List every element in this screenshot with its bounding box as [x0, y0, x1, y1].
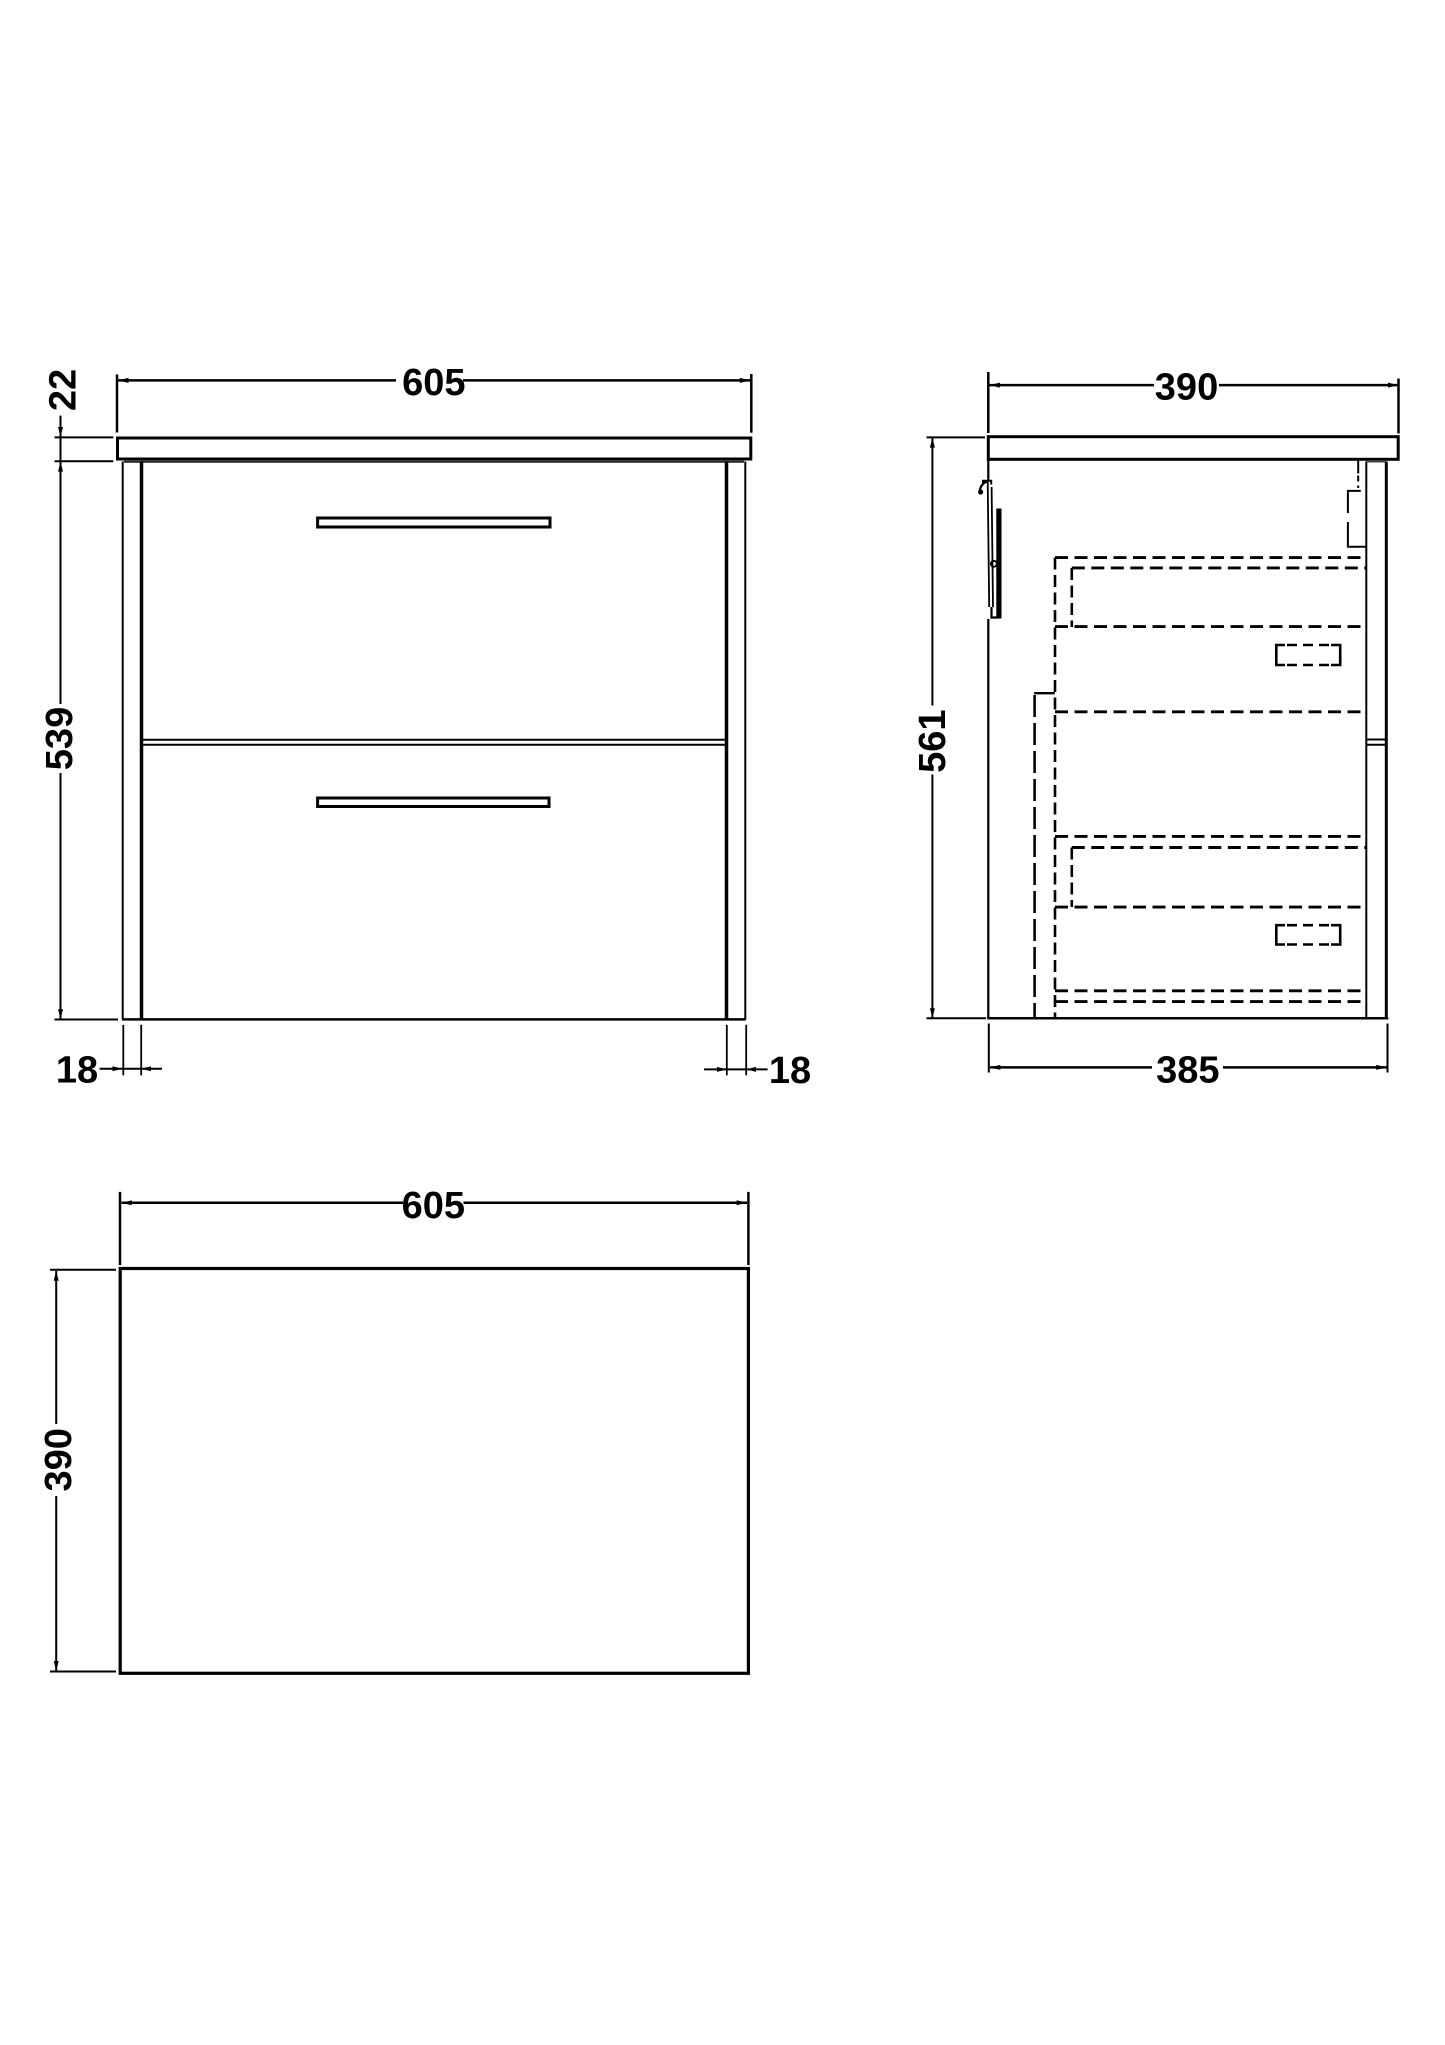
svg-text:18: 18: [769, 1050, 811, 1092]
svg-text:561: 561: [912, 709, 954, 772]
svg-text:18: 18: [56, 1049, 98, 1091]
svg-text:605: 605: [402, 362, 465, 404]
svg-text:390: 390: [1155, 366, 1218, 408]
svg-text:605: 605: [402, 1185, 465, 1227]
svg-text:385: 385: [1156, 1049, 1219, 1091]
svg-text:539: 539: [39, 707, 81, 770]
svg-text:22: 22: [42, 369, 84, 411]
svg-text:390: 390: [38, 1428, 80, 1491]
